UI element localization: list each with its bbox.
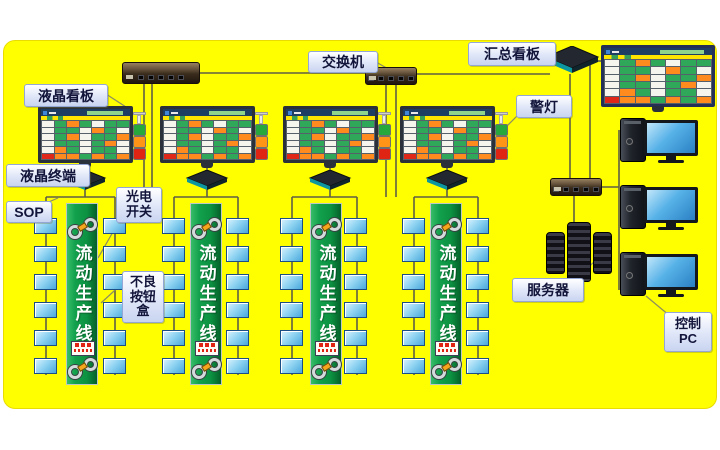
kanban-cell bbox=[164, 147, 176, 153]
kanban-cell bbox=[55, 128, 67, 134]
pc-drive-slot bbox=[624, 188, 641, 191]
label-photo-switch: 光电 开关 bbox=[116, 187, 162, 223]
kanban-cell bbox=[67, 147, 79, 153]
pc-power-button bbox=[626, 205, 633, 212]
kanban-cell bbox=[442, 128, 454, 134]
kanban-cell bbox=[417, 147, 429, 153]
kanban-cell bbox=[666, 89, 680, 95]
kanban-cell bbox=[92, 134, 104, 140]
label-text: 不良 按钮 盒 bbox=[130, 275, 156, 319]
workstation-terminal bbox=[344, 302, 367, 318]
kanban-cell bbox=[350, 141, 362, 147]
kanban-cell bbox=[479, 141, 491, 147]
kanban-cell bbox=[454, 121, 466, 127]
kanban-cell bbox=[227, 134, 239, 140]
kanban-cell bbox=[697, 89, 711, 95]
kanban-cell bbox=[666, 82, 680, 88]
kanban-cell bbox=[651, 97, 665, 103]
workstation-terminal bbox=[466, 358, 489, 374]
pc-drive-slot bbox=[624, 121, 641, 124]
kanban-cell bbox=[325, 147, 337, 153]
ethernet-port bbox=[583, 187, 589, 192]
label-text: 液晶终端 bbox=[20, 166, 76, 186]
summary-kanban-board bbox=[601, 45, 715, 107]
kanban-cell bbox=[312, 147, 324, 153]
kanban-cell bbox=[117, 128, 129, 134]
workstation-terminal bbox=[344, 246, 367, 262]
orange-light bbox=[495, 136, 508, 148]
photo-sensor-icon bbox=[432, 356, 461, 382]
kanban-cell bbox=[651, 89, 665, 95]
kanban-cell bbox=[417, 134, 429, 140]
screen-titlebar bbox=[604, 48, 712, 55]
kanban-cell bbox=[67, 128, 79, 134]
green-light bbox=[495, 124, 508, 136]
alarm-tower-light-1 bbox=[133, 112, 146, 162]
kanban-cell bbox=[300, 134, 312, 140]
screen-title-chip bbox=[209, 111, 245, 115]
kanban-cell bbox=[666, 60, 680, 66]
kanban-cell bbox=[80, 154, 92, 160]
workstation-terminal bbox=[280, 302, 303, 318]
label-text: 汇总看板 bbox=[484, 44, 540, 64]
titlebar-logo-icon bbox=[405, 111, 409, 115]
kanban-cell bbox=[479, 128, 491, 134]
pc-monitor bbox=[644, 254, 698, 290]
kanban-cell bbox=[227, 128, 239, 134]
production-line-banner-2: 流动生产线 bbox=[190, 203, 222, 385]
kanban-cell bbox=[620, 75, 634, 81]
kanban-cell bbox=[92, 141, 104, 147]
kanban-cell bbox=[105, 154, 117, 160]
kanban-cell bbox=[362, 134, 374, 140]
kanban-cell bbox=[117, 147, 129, 153]
light-pole bbox=[259, 115, 263, 124]
kanban-cell bbox=[214, 141, 226, 147]
kanban-cell bbox=[417, 154, 429, 160]
workstation-terminal bbox=[344, 218, 367, 234]
kanban-cell bbox=[202, 128, 214, 134]
switch-brand-tag bbox=[369, 76, 376, 80]
ethernet-port bbox=[388, 76, 394, 81]
kanban-cell bbox=[177, 154, 189, 160]
photo-sensor-icon bbox=[312, 216, 341, 242]
kanban-cell bbox=[362, 147, 374, 153]
label-control-pc: 控制 PC bbox=[664, 312, 712, 352]
kanban-cell bbox=[605, 82, 619, 88]
photo-sensor-icon bbox=[192, 216, 221, 242]
kanban-cell bbox=[337, 128, 349, 134]
pc-power-button bbox=[626, 272, 633, 279]
kanban-cell bbox=[177, 134, 189, 140]
kanban-cell bbox=[620, 82, 634, 88]
titlebar-logo-icon bbox=[165, 111, 169, 115]
server-tower bbox=[546, 232, 565, 274]
kanban-cell bbox=[202, 147, 214, 153]
control-pc-1 bbox=[620, 116, 700, 164]
kanban-cell bbox=[227, 154, 239, 160]
kanban-cell bbox=[312, 154, 324, 160]
kanban-cell bbox=[442, 121, 454, 127]
screen-titlebar bbox=[163, 109, 252, 116]
workstation-terminal bbox=[34, 302, 57, 318]
kanban-cell bbox=[697, 75, 711, 81]
monitor-stand bbox=[652, 106, 664, 112]
kanban-cell-grid bbox=[286, 120, 375, 160]
kanban-cell bbox=[92, 128, 104, 134]
light-pole bbox=[499, 115, 503, 124]
production-line-label: 流动生产线 bbox=[70, 244, 95, 344]
workstation-terminal bbox=[280, 274, 303, 290]
kanban-cell bbox=[312, 141, 324, 147]
kanban-cell bbox=[67, 121, 79, 127]
pc-tower bbox=[620, 252, 646, 296]
label-text: SOP bbox=[14, 204, 44, 220]
ethernet-port bbox=[378, 76, 384, 81]
kanban-cell bbox=[337, 141, 349, 147]
label-text: 液晶看板 bbox=[38, 86, 94, 106]
control-pc-3 bbox=[620, 250, 700, 298]
kanban-screen bbox=[286, 109, 375, 160]
kanban-cell bbox=[202, 154, 214, 160]
kanban-cell bbox=[312, 134, 324, 140]
kanban-cell bbox=[697, 67, 711, 73]
label-alarm-light: 警灯 bbox=[516, 95, 572, 118]
screen-title-chip bbox=[660, 50, 704, 54]
kanban-cell bbox=[92, 121, 104, 127]
kanban-cell bbox=[429, 141, 441, 147]
workstation-terminal bbox=[466, 218, 489, 234]
defect-buttons bbox=[438, 343, 456, 347]
kanban-cell bbox=[337, 134, 349, 140]
kanban-cell bbox=[227, 121, 239, 127]
kanban-cell bbox=[337, 121, 349, 127]
kanban-cell bbox=[325, 154, 337, 160]
workstation-terminal bbox=[280, 246, 303, 262]
kanban-cell bbox=[404, 141, 416, 147]
alarm-tower-light-4 bbox=[495, 112, 508, 162]
kanban-cell bbox=[350, 128, 362, 134]
workstation-terminal bbox=[466, 302, 489, 318]
label-server: 服务器 bbox=[512, 278, 584, 302]
kanban-screen bbox=[403, 109, 492, 160]
kanban-cell bbox=[214, 154, 226, 160]
label-sop: SOP bbox=[6, 201, 52, 223]
workstation-terminal bbox=[226, 274, 249, 290]
ethernet-port bbox=[573, 187, 579, 192]
kanban-cell bbox=[325, 141, 337, 147]
workstation-terminal bbox=[162, 358, 185, 374]
titlebar-logo-icon bbox=[288, 111, 292, 115]
kanban-cell bbox=[42, 147, 54, 153]
kanban-cell bbox=[620, 60, 634, 66]
kanban-cell bbox=[697, 60, 711, 66]
workstation-terminal bbox=[280, 330, 303, 346]
workstation-terminal bbox=[402, 330, 425, 346]
workstation-terminal bbox=[344, 274, 367, 290]
kanban-cell bbox=[605, 75, 619, 81]
photo-sensor-icon bbox=[432, 216, 461, 242]
kanban-cell bbox=[300, 154, 312, 160]
kanban-cell bbox=[666, 97, 680, 103]
kanban-cell bbox=[189, 141, 201, 147]
kanban-cell-grid bbox=[163, 120, 252, 160]
kanban-cell bbox=[325, 121, 337, 127]
kanban-cell bbox=[287, 141, 299, 147]
defect-box-label-strip bbox=[438, 349, 456, 352]
defect-button-box-device bbox=[315, 341, 339, 356]
workstation-terminal bbox=[466, 246, 489, 262]
kanban-cell bbox=[42, 121, 54, 127]
kanban-cell bbox=[67, 154, 79, 160]
kanban-cell bbox=[287, 128, 299, 134]
defect-box-label-strip bbox=[198, 349, 216, 352]
kanban-cell bbox=[350, 121, 362, 127]
alarm-tower-light-2 bbox=[255, 112, 268, 162]
kanban-cell bbox=[620, 67, 634, 73]
kanban-cell bbox=[117, 121, 129, 127]
workstation-terminal bbox=[34, 274, 57, 290]
kanban-cell bbox=[55, 121, 67, 127]
light-pole bbox=[137, 115, 141, 124]
defect-button-box-device bbox=[435, 341, 459, 356]
green-light bbox=[133, 124, 146, 136]
kanban-cell bbox=[681, 97, 695, 103]
kanban-cell bbox=[227, 147, 239, 153]
kanban-cell bbox=[202, 141, 214, 147]
kanban-cell bbox=[404, 121, 416, 127]
kanban-cell bbox=[80, 134, 92, 140]
workstation-terminal bbox=[103, 246, 126, 262]
kanban-cell bbox=[287, 134, 299, 140]
kanban-cell bbox=[362, 128, 374, 134]
kanban-cell bbox=[55, 141, 67, 147]
kanban-cell bbox=[287, 154, 299, 160]
workstation-terminal bbox=[34, 246, 57, 262]
workstation-terminal bbox=[226, 218, 249, 234]
lcd-terminal-device-3 bbox=[308, 170, 352, 197]
kanban-cell bbox=[429, 134, 441, 140]
kanban-cell bbox=[442, 154, 454, 160]
kanban-cell bbox=[239, 147, 251, 153]
kanban-cell bbox=[636, 82, 650, 88]
workstation-terminal bbox=[34, 358, 57, 374]
kanban-cell bbox=[697, 97, 711, 103]
control-pc-2 bbox=[620, 183, 700, 231]
workstation-terminal bbox=[34, 330, 57, 346]
kanban-cell bbox=[80, 121, 92, 127]
kanban-cell bbox=[362, 121, 374, 127]
titlebar-text-chip bbox=[49, 112, 56, 114]
kanban-cell bbox=[214, 147, 226, 153]
ethernet-port bbox=[398, 76, 404, 81]
kanban-cell bbox=[417, 128, 429, 134]
kanban-cell bbox=[442, 134, 454, 140]
light-pole bbox=[382, 115, 386, 124]
alarm-tower-light-3 bbox=[378, 112, 391, 162]
ethernet-port bbox=[138, 75, 144, 80]
orange-light bbox=[378, 136, 391, 148]
label-defect-button-box: 不良 按钮 盒 bbox=[122, 271, 164, 323]
workstation-terminal bbox=[402, 218, 425, 234]
screen-title-chip bbox=[449, 111, 485, 115]
server-tower bbox=[567, 222, 591, 282]
workstation-terminal bbox=[162, 302, 185, 318]
kanban-cell bbox=[312, 128, 324, 134]
kanban-cell bbox=[442, 147, 454, 153]
kanban-cell bbox=[454, 147, 466, 153]
workstation-terminal bbox=[162, 246, 185, 262]
label-lcd-board: 液晶看板 bbox=[24, 84, 108, 107]
kanban-cell bbox=[214, 134, 226, 140]
red-light bbox=[133, 148, 146, 160]
kanban-cell bbox=[287, 147, 299, 153]
workstation-terminal bbox=[344, 330, 367, 346]
kanban-cell bbox=[80, 128, 92, 134]
monitor-stand bbox=[201, 162, 213, 168]
kanban-cell bbox=[92, 154, 104, 160]
kanban-cell bbox=[164, 121, 176, 127]
kanban-cell bbox=[55, 154, 67, 160]
lcd-kanban-monitor-2 bbox=[160, 106, 255, 163]
defect-buttons bbox=[198, 343, 216, 347]
photo-sensor-icon bbox=[312, 356, 341, 382]
workstation-terminal bbox=[162, 274, 185, 290]
kanban-cell bbox=[651, 82, 665, 88]
label-text: 控制 PC bbox=[675, 317, 701, 346]
kanban-cell bbox=[467, 128, 479, 134]
kanban-cell bbox=[67, 141, 79, 147]
kanban-cell bbox=[666, 67, 680, 73]
kanban-cell bbox=[80, 141, 92, 147]
label-text: 服务器 bbox=[527, 280, 569, 300]
ethernet-port bbox=[158, 75, 164, 80]
kanban-cell bbox=[164, 141, 176, 147]
lcd-kanban-monitor-4 bbox=[400, 106, 495, 163]
pc-drive-slot bbox=[624, 255, 641, 258]
ethernet-port bbox=[148, 75, 154, 80]
kanban-cell bbox=[479, 154, 491, 160]
production-line-label: 流动生产线 bbox=[314, 244, 339, 344]
kanban-screen bbox=[604, 48, 712, 104]
kanban-cell bbox=[620, 89, 634, 95]
workstation-terminal bbox=[402, 302, 425, 318]
production-line-banner-4: 流动生产线 bbox=[430, 203, 462, 385]
titlebar-text-chip bbox=[171, 112, 178, 114]
network-switch-1 bbox=[122, 62, 200, 84]
workstation-terminal bbox=[280, 358, 303, 374]
workstation-terminal bbox=[226, 302, 249, 318]
ethernet-port bbox=[408, 76, 414, 81]
kanban-cell bbox=[55, 134, 67, 140]
workstation-terminal bbox=[226, 246, 249, 262]
production-line-banner-3: 流动生产线 bbox=[310, 203, 342, 385]
kanban-cell bbox=[164, 134, 176, 140]
kanban-cell bbox=[605, 89, 619, 95]
kanban-cell bbox=[666, 75, 680, 81]
kanban-cell bbox=[636, 89, 650, 95]
kanban-cell bbox=[651, 67, 665, 73]
label-text: 交换机 bbox=[322, 52, 364, 72]
workstation-terminal bbox=[402, 246, 425, 262]
red-light bbox=[495, 148, 508, 160]
lcd-kanban-monitor-3 bbox=[283, 106, 378, 163]
kanban-cell bbox=[214, 128, 226, 134]
green-light bbox=[378, 124, 391, 136]
kanban-cell bbox=[177, 147, 189, 153]
kanban-cell bbox=[177, 128, 189, 134]
monitor-stand bbox=[324, 162, 336, 168]
workstation-terminal bbox=[162, 218, 185, 234]
kanban-cell bbox=[202, 121, 214, 127]
kanban-cell bbox=[467, 147, 479, 153]
kanban-cell bbox=[350, 134, 362, 140]
kanban-cell bbox=[429, 147, 441, 153]
kanban-cell bbox=[105, 141, 117, 147]
kanban-cell bbox=[681, 67, 695, 73]
kanban-cell bbox=[92, 147, 104, 153]
titlebar-text-chip bbox=[612, 51, 619, 53]
pc-monitor bbox=[644, 120, 698, 156]
kanban-cell bbox=[467, 134, 479, 140]
kanban-cell bbox=[467, 121, 479, 127]
workstation-terminal bbox=[466, 330, 489, 346]
defect-buttons bbox=[318, 343, 336, 347]
kanban-cell bbox=[651, 75, 665, 81]
switch-brand-tag bbox=[554, 187, 561, 191]
kanban-cell bbox=[325, 134, 337, 140]
kanban-cell bbox=[67, 134, 79, 140]
screen-titlebar bbox=[286, 109, 375, 116]
kanban-cell bbox=[105, 128, 117, 134]
kanban-cell bbox=[105, 134, 117, 140]
lcd-kanban-monitor-1 bbox=[38, 106, 133, 163]
photo-sensor-icon bbox=[68, 356, 97, 382]
pc-tower bbox=[620, 118, 646, 162]
kanban-cell bbox=[202, 134, 214, 140]
kanban-cell bbox=[417, 121, 429, 127]
kanban-cell bbox=[239, 134, 251, 140]
kanban-cell bbox=[55, 147, 67, 153]
kanban-cell bbox=[404, 134, 416, 140]
workstation-terminal bbox=[103, 330, 126, 346]
kanban-cell bbox=[429, 128, 441, 134]
kanban-cell bbox=[239, 141, 251, 147]
kanban-cell bbox=[467, 141, 479, 147]
kanban-cell bbox=[605, 97, 619, 103]
kanban-cell bbox=[454, 141, 466, 147]
kanban-cell bbox=[454, 128, 466, 134]
network-switch-3 bbox=[550, 178, 602, 196]
workstation-terminal bbox=[280, 218, 303, 234]
kanban-cell bbox=[189, 121, 201, 127]
kanban-cell bbox=[681, 89, 695, 95]
kanban-cell bbox=[189, 134, 201, 140]
kanban-cell bbox=[42, 134, 54, 140]
kanban-cell bbox=[350, 154, 362, 160]
kanban-cell bbox=[312, 121, 324, 127]
workstation-terminal bbox=[103, 358, 126, 374]
titlebar-logo-icon bbox=[43, 111, 47, 115]
kanban-cell bbox=[189, 154, 201, 160]
kanban-cell-grid bbox=[403, 120, 492, 160]
monitor-stand bbox=[441, 162, 453, 168]
kanban-cell bbox=[636, 75, 650, 81]
server-tower bbox=[593, 232, 612, 274]
kanban-cell-grid bbox=[604, 59, 712, 104]
label-lcd-terminal: 液晶终端 bbox=[6, 164, 90, 187]
lcd-terminal-device-2 bbox=[185, 170, 229, 197]
